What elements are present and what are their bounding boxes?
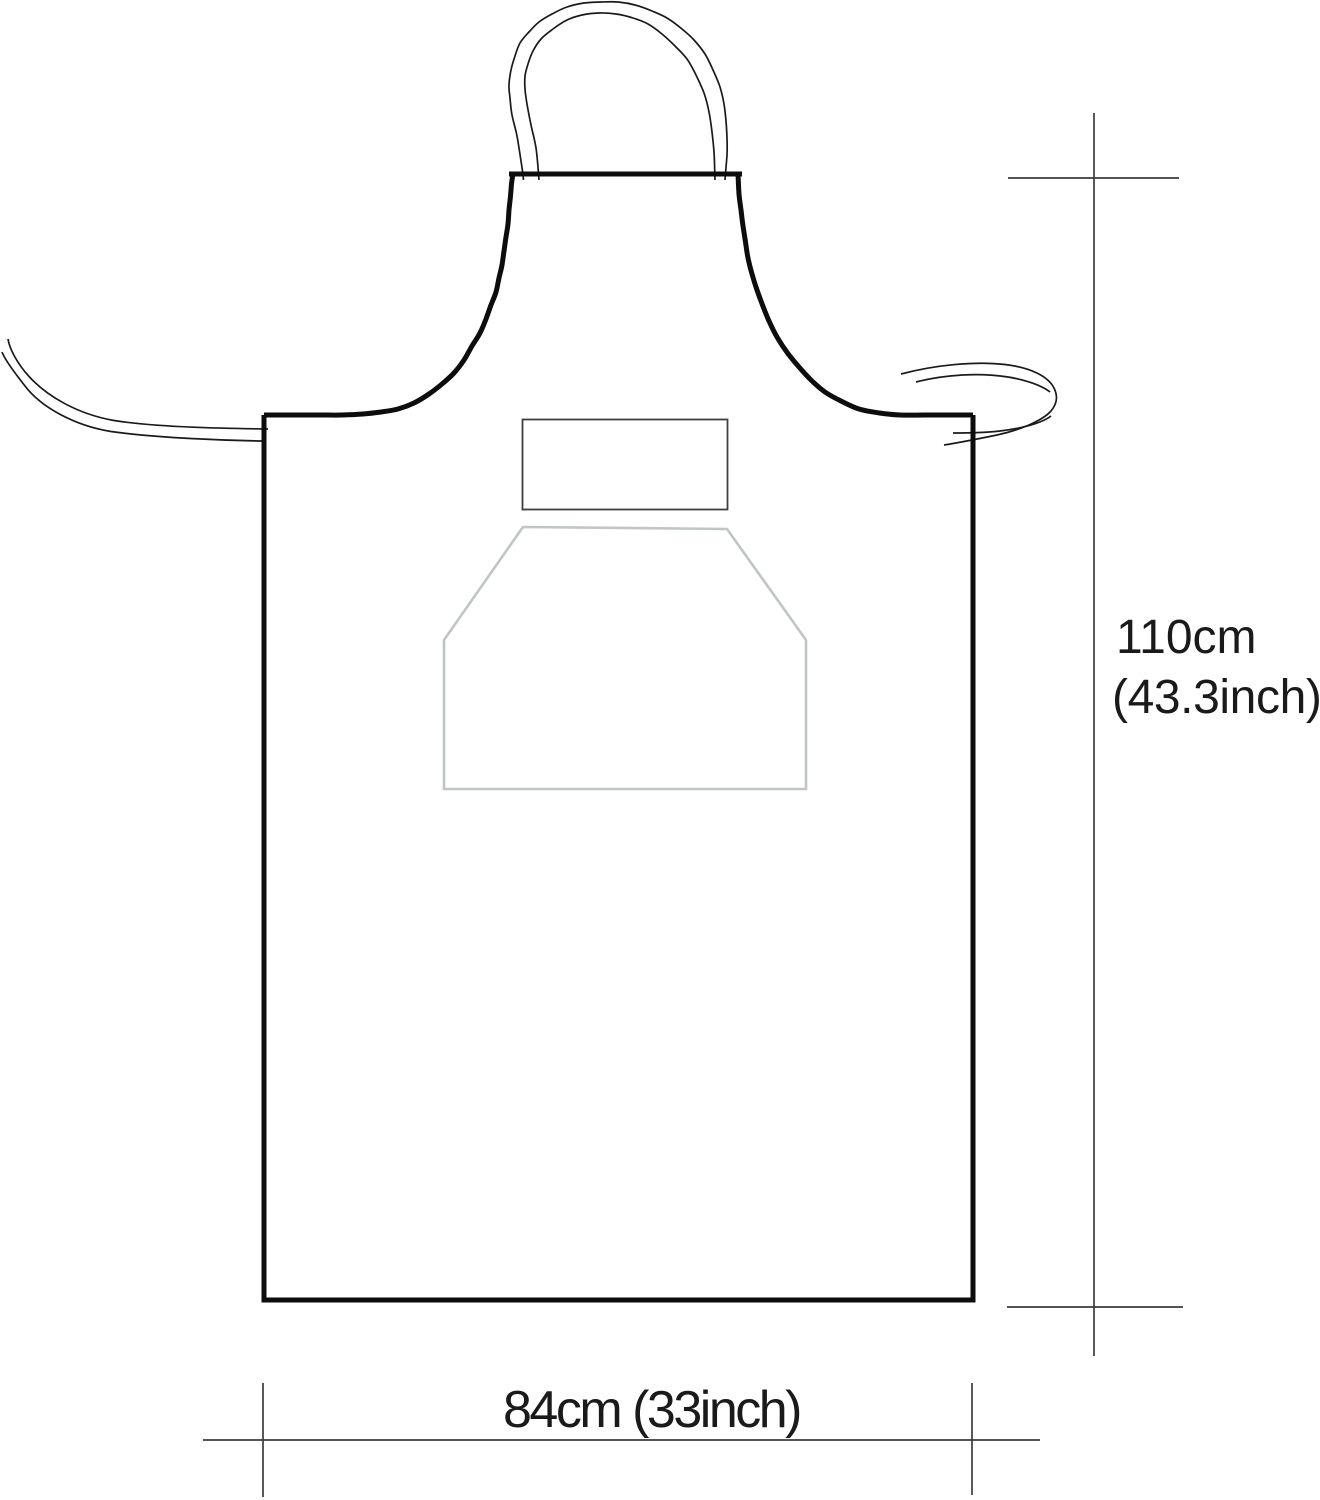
svg-text:110cm: 110cm bbox=[1116, 611, 1257, 664]
svg-text:84cm (33inch): 84cm (33inch) bbox=[503, 1381, 800, 1439]
svg-text:(43.3inch): (43.3inch) bbox=[1112, 671, 1320, 724]
